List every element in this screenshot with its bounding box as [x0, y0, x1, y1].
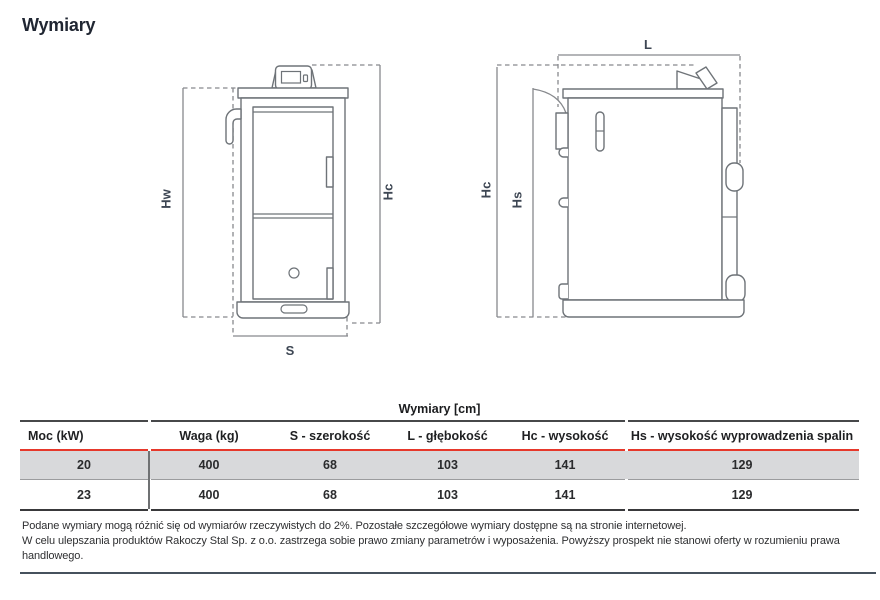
cell-wysokosc-spalin: 129	[625, 488, 859, 502]
label-hc-side: Hc	[479, 182, 494, 199]
upper-door-latch	[327, 157, 334, 187]
bottom-separator-line	[20, 572, 876, 574]
cell-waga: 400	[148, 458, 270, 472]
top-plate	[238, 88, 348, 98]
cell-szerokosc: 68	[270, 458, 390, 472]
top-plate-side	[563, 89, 723, 98]
cell-szerokosc: 68	[270, 488, 390, 502]
column-header-wysokosc: Hc - wysokość	[505, 429, 625, 443]
door-frame	[253, 107, 333, 299]
front-flue-box	[556, 113, 568, 149]
cell-glebokosc: 103	[390, 458, 505, 472]
boiler-side-view: L Hc Hs	[479, 37, 746, 317]
footnote-line: W celu ulepszania produktów Rakoczy Stal…	[22, 534, 872, 549]
boiler-front-body	[226, 66, 349, 318]
boiler-side-body	[556, 67, 745, 317]
table-row: 20 400 68 103 141 129	[20, 451, 859, 479]
table-bottom-border	[628, 509, 859, 511]
water-connection-upper	[726, 163, 743, 191]
column-header-moc: Moc (kW)	[20, 429, 148, 443]
table-bottom-border	[20, 509, 148, 511]
control-panel	[276, 66, 312, 89]
footnote-line: handlowego.	[22, 549, 872, 564]
table-header-row: Moc (kW) Waga (kg) S - szerokość L - głę…	[20, 422, 859, 449]
label-hs: Hs	[510, 192, 525, 209]
label-l: L	[644, 37, 652, 52]
water-connection-lower	[726, 275, 745, 302]
table-bottom-border	[151, 509, 625, 511]
footnote: Podane wymiary mogą różnić się od wymiar…	[22, 519, 872, 564]
footnote-line: Podane wymiary mogą różnić się od wymiar…	[22, 519, 872, 534]
table-title: Wymiary [cm]	[20, 402, 859, 416]
body-shell-side	[568, 98, 722, 300]
lower-door-latch	[327, 268, 333, 299]
door-handle	[226, 109, 241, 144]
front-hinge-upper	[559, 148, 568, 157]
front-hinge-middle	[559, 198, 568, 207]
cell-moc: 20	[20, 458, 148, 472]
boiler-front-view: Hw Hc S	[159, 65, 396, 358]
cell-wysokosc: 141	[505, 488, 625, 502]
column-header-wysokosc-spalin: Hs - wysokość wyprowadzenia spalin	[625, 429, 859, 443]
column-header-szerokosc: S - szerokość	[270, 429, 390, 443]
table-row: 23 400 68 103 141 129	[20, 480, 859, 509]
dimensions-table: Moc (kW) Waga (kg) S - szerokość L - głę…	[20, 420, 859, 511]
label-hc-front: Hc	[381, 184, 396, 201]
label-s: S	[286, 343, 295, 358]
front-hinge-lower	[559, 284, 568, 299]
column-divider-line	[148, 451, 150, 509]
dimension-drawings: Hw Hc S	[0, 0, 880, 395]
cell-glebokosc: 103	[390, 488, 505, 502]
column-header-glebokosc: L - głębokość	[390, 429, 505, 443]
base-plinth-side	[563, 300, 744, 317]
label-hw: Hw	[159, 188, 174, 208]
cell-wysokosc: 141	[505, 458, 625, 472]
column-header-waga: Waga (kg)	[148, 429, 270, 443]
cell-waga: 400	[148, 488, 270, 502]
hs-leader-arc	[533, 89, 566, 113]
cell-wysokosc-spalin: 129	[625, 458, 859, 472]
cell-moc: 23	[20, 488, 148, 502]
rear-panel	[722, 108, 737, 300]
